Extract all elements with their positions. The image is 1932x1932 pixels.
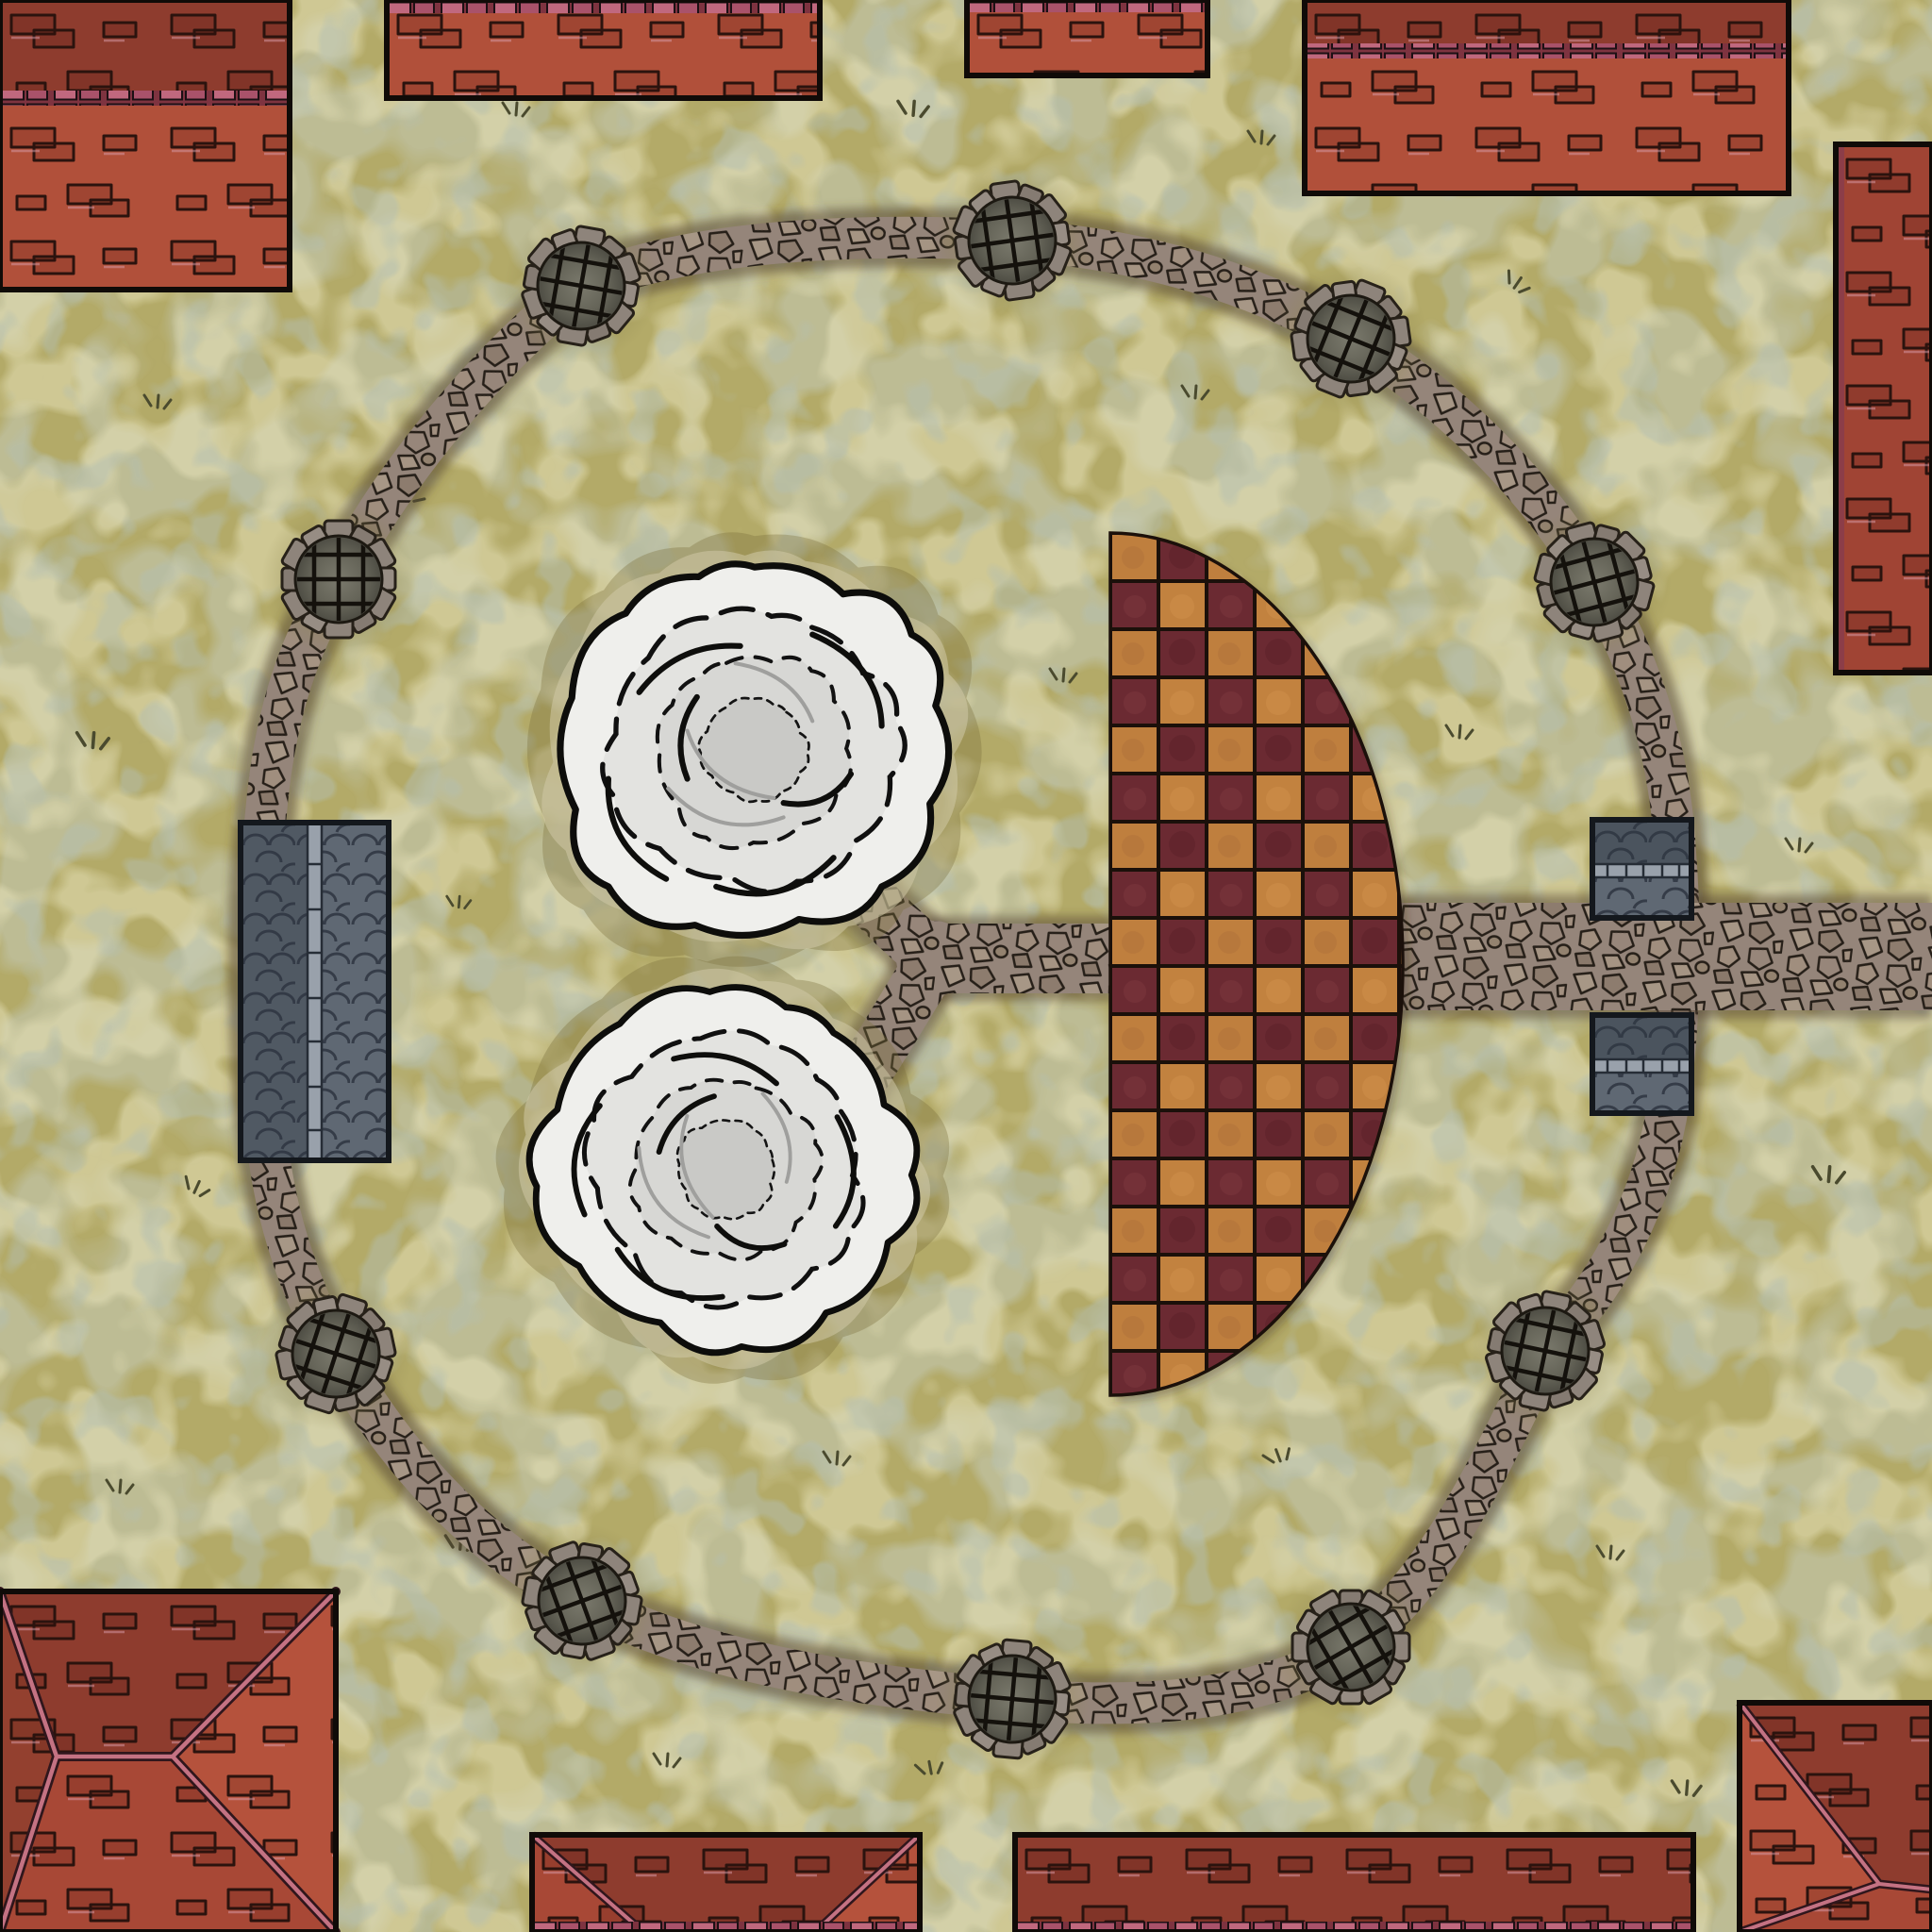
- east-gate-south: [1592, 1015, 1691, 1113]
- east-gate-north: [1592, 820, 1691, 918]
- roof-northwest: [0, 0, 290, 290]
- roof-south-b: [1015, 1835, 1693, 1932]
- roof-southeast-hip: [1740, 1703, 1932, 1932]
- road-junction: [896, 921, 972, 996]
- battle-map-canvas[interactable]: [0, 0, 1932, 1932]
- roof-north-b: [967, 0, 1207, 75]
- roof-southwest-hip: [0, 1591, 336, 1932]
- gatehouse-ridge-beam: [308, 823, 322, 1160]
- roof-east-strip: [1836, 144, 1932, 673]
- roof-south-a: [532, 1835, 920, 1932]
- battle-map-svg[interactable]: [0, 0, 1932, 1932]
- roof-northeast: [1305, 0, 1789, 193]
- roof-north-a: [387, 0, 820, 98]
- roof-ridge-row: [0, 91, 290, 106]
- west-gatehouse-roof: [241, 823, 389, 1160]
- watchtower: [261, 502, 416, 657]
- roof-ridge-row: [1305, 43, 1789, 58]
